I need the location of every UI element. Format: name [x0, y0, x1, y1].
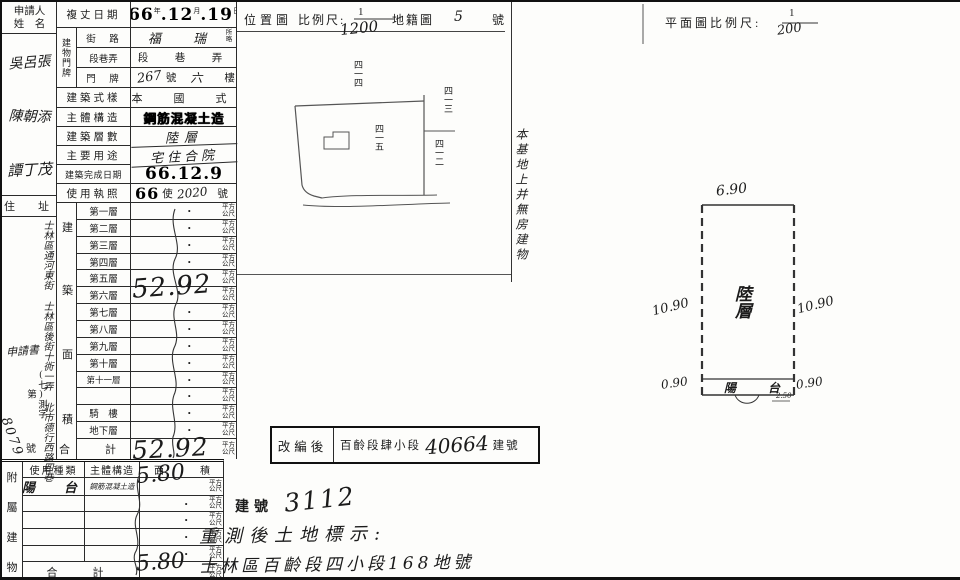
annex-side-label: 附 屬 建 物: [2, 462, 23, 580]
style-value: 本 國 式: [131, 88, 237, 108]
floor-row-value: ·平方公尺: [131, 220, 237, 237]
annex-header-structure: 主體構造: [85, 462, 140, 478]
location-map-right-border: [511, 2, 512, 282]
floor-row-value: ·平方公尺: [131, 321, 237, 338]
street-note: 所 略: [223, 29, 235, 43]
floor-row-label: 第七層: [77, 304, 131, 321]
stamp-label: 改編後: [272, 428, 334, 462]
completion-value: 66.12.9: [131, 165, 237, 184]
structure-value: 鋼筋混凝土造: [131, 108, 237, 127]
plan-room-label: 陸層: [729, 285, 754, 333]
floor-plan-title: 平面圖比例尺: 1 200: [665, 10, 955, 46]
floor-row-value: ·平方公尺: [131, 304, 237, 321]
floor-row-label: [77, 388, 131, 405]
applicant-address: 士林區通河東街 士林區後街十衖一弄 北市德行西路四巷: [4, 220, 54, 340]
applicant-name-2: 陳朝添: [1, 89, 58, 143]
floor-row-label: 騎 樓: [77, 405, 131, 422]
lot-label-center: 四一五: [373, 124, 384, 162]
plate-number: 267: [136, 68, 163, 86]
usage-label: 主要用途: [57, 146, 131, 165]
floor-row-label: 第八層: [77, 321, 131, 338]
building-no-value: 3112: [283, 481, 357, 517]
floor-row-value: ·平方公尺: [131, 254, 237, 270]
stamp-content: 百齡段肆小段 40664 建號: [334, 428, 538, 462]
survey-date-label: 複丈日期: [57, 2, 131, 28]
stamp-suffix: 建號: [493, 437, 520, 453]
floor6-area-handwritten: 52.92: [131, 269, 212, 304]
main-form-table: 複丈日期 66 年 . 12 月 . 19 日 建物門牌 街 路 福 瑞 所 略…: [57, 2, 237, 459]
license-mid: 使: [162, 186, 173, 201]
license-value: 66 使 2020 號: [131, 184, 237, 203]
style-label: 建築式樣: [57, 88, 131, 108]
scanned-survey-document: 申請人 姓 名 吳呂張 陳朝添 譚丁茂 住 址 士林區通河東街 士林區後街十衖一…: [0, 0, 960, 580]
plate-floor-unit: 樓: [224, 70, 235, 85]
floor-row-label: 第十層: [77, 355, 131, 372]
survey-year: 66: [131, 5, 154, 25]
floor-row-label: 第十一層: [77, 372, 131, 388]
file-number-prefix: (七)測字第: [24, 368, 46, 420]
stamp-section: 百齡段肆小段: [340, 437, 421, 453]
address-col-1: 士林區通河東街: [41, 220, 52, 290]
floor-row-label: 第二層: [77, 220, 131, 237]
survey-month-unit: 月: [193, 6, 200, 16]
plan-balcony-label: 陽 台: [724, 379, 790, 396]
storeys-label: 建築層數: [57, 127, 131, 146]
location-scale-denominator: 1200: [339, 17, 379, 39]
floor-row-label: 第九層: [77, 338, 131, 355]
building-no-label: 建號: [235, 496, 273, 516]
plan-dim-right: 10.90: [796, 294, 836, 318]
site-note-vertical: 本基地上并無房建物: [513, 128, 530, 276]
file-number-value: 8079: [0, 416, 24, 458]
section-label: 段巷弄: [77, 48, 131, 68]
structure-label: 主體構造: [57, 108, 131, 127]
file-number-suffix: 號: [26, 444, 36, 455]
annex-row1-handwritten: 5.80: [135, 460, 186, 489]
location-scale-numerator: 1: [358, 6, 364, 18]
floor-row-label: 地下層: [77, 422, 131, 439]
stamp-number: 40664: [424, 431, 489, 459]
section-value: 段 巷 弄: [131, 48, 237, 68]
applicant-column: 申請人 姓 名 吳呂張 陳朝添 譚丁茂 住 址 士林區通河東街 士林區後街十衖一…: [2, 2, 57, 459]
floor-row-value: ·平方公尺: [131, 405, 237, 422]
plan-dim-bottom-right: 0.90: [795, 374, 823, 392]
license-label: 使用執照: [57, 184, 131, 203]
floor-row-value: ·平方公尺: [131, 237, 237, 254]
floor-row-value: ·平方公尺: [131, 203, 237, 220]
street-value: 福 瑞: [131, 28, 237, 48]
lot-label-top: 四一四: [352, 60, 363, 96]
floor-row-value: ·平方公尺: [131, 372, 237, 388]
annex-total-label: 合 計: [23, 562, 140, 580]
license-no: 2020: [176, 184, 208, 201]
license-year: 66: [135, 184, 159, 203]
annex-header-use: 使用種類: [23, 462, 85, 478]
applicant-name-3: 譚丁茂: [1, 143, 59, 196]
plan-dim-left: 10.90: [651, 296, 691, 320]
plate-number-unit: 號: [166, 70, 177, 85]
plan-dim-bottom-left: 0.90: [660, 374, 688, 392]
plate-label: 門 牌: [77, 68, 131, 88]
plan-scale-numerator: 1: [789, 7, 795, 19]
floor-row-value: ·平方公尺: [131, 355, 237, 372]
location-map-title: 位置圖 比例尺: 1 1200 地籍圖 5 號: [242, 8, 510, 32]
plate-value: 267 號 六 樓: [131, 68, 237, 88]
door-plate-group-label: 建物門牌: [57, 28, 77, 88]
applicant-name-header: 申請人 姓 名: [2, 2, 57, 34]
completion-label: 建築完成日期: [57, 165, 131, 184]
floor-row-label: 第四層: [77, 254, 131, 270]
applicant-name-1: 吳呂張: [0, 34, 58, 90]
survey-month: .: [161, 5, 168, 25]
survey-date-value: 66 年 . 12 月 . 19 日: [131, 2, 237, 28]
lot-label-right-upper: 四一三: [442, 86, 453, 126]
survey-year-unit: 年: [154, 6, 161, 16]
survey-day: 19: [207, 5, 233, 25]
annex-row1-use: 陽 台: [23, 478, 85, 496]
floor-row-label: 第五層: [77, 270, 131, 287]
floor-row-label: 第六層: [77, 287, 131, 304]
street-label: 街 路: [77, 28, 131, 48]
floor-row-value: ·平方公尺: [131, 338, 237, 355]
license-suffix: 號: [217, 186, 228, 201]
annex-total-handwritten: 5.80: [135, 548, 186, 576]
survey-day-unit: 日: [233, 6, 237, 16]
plan-dim-top: 6.90: [715, 180, 748, 199]
lot-label-right-lower: 四一二: [433, 139, 444, 175]
location-map-title-text: 位置圖: [244, 11, 292, 28]
address-header: 住 址: [2, 195, 57, 217]
plan-scale-denominator: 200: [776, 20, 803, 38]
floor-area-side: 建 築 面 積: [57, 203, 77, 459]
annex-row1-structure: 鋼筋混凝土造: [85, 478, 140, 496]
resurvey-note-line2: 重測後土地標示:: [199, 519, 388, 548]
plate-floor: 六: [190, 69, 202, 86]
applicant-label-1: 申請人: [14, 5, 46, 18]
floor-total-label: 合 計: [57, 439, 131, 459]
resurvey-note-line3: 士林區百齡段四小段168地號: [199, 548, 475, 578]
renumber-stamp-box: 改編後 百齡段肆小段 40664 建號: [270, 426, 540, 464]
applicant-label-2: 姓 名: [14, 18, 46, 31]
floor-row-label: 第一層: [77, 203, 131, 220]
floor-row-label: 第三層: [77, 237, 131, 254]
cadastral-sheet-no: 5: [454, 9, 463, 25]
annex-table: 附 屬 建 物 使用種類 主體構造 面積 陽 台 鋼筋混凝土造 平方公尺 ·平方…: [2, 459, 224, 579]
floor-row-value: ·平方公尺: [131, 388, 237, 405]
location-map-bottom-border: [237, 274, 511, 275]
